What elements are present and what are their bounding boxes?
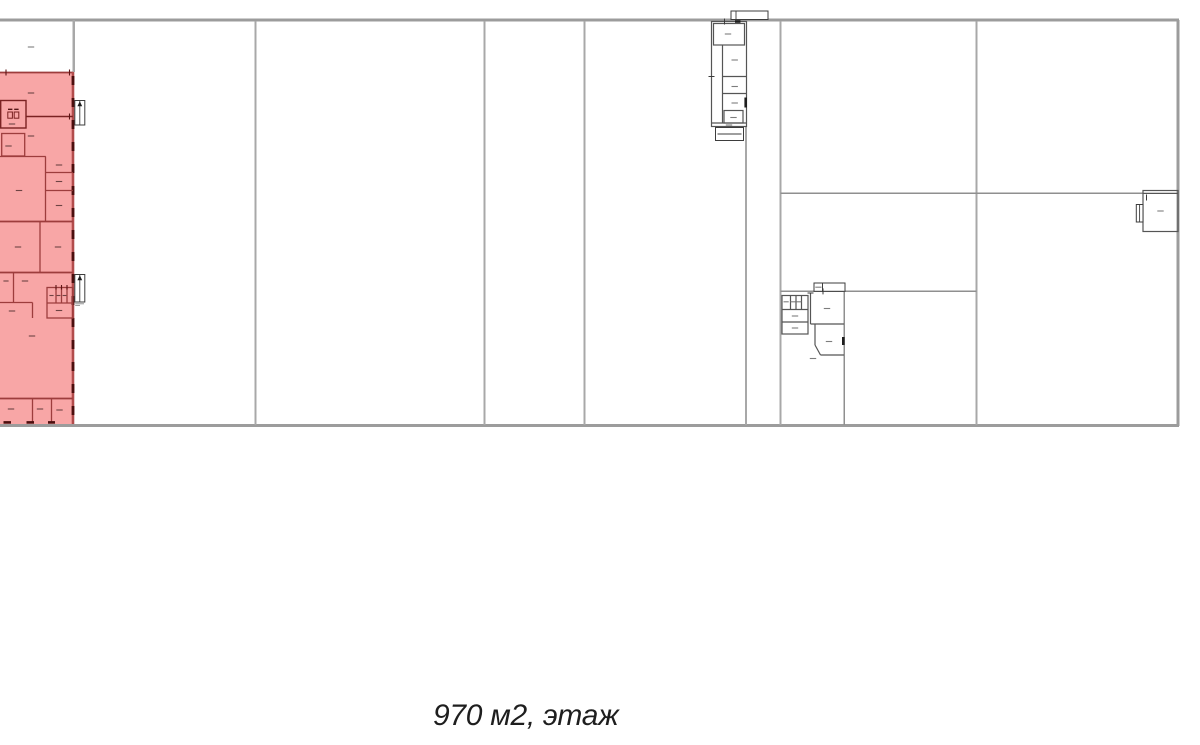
stairs-left-top-icon — [75, 101, 85, 126]
caption-text: 970 м2, этаж — [433, 699, 618, 732]
floorplan-page: { "caption": { "text": "970 м2, этаж" },… — [0, 0, 1200, 745]
rooms-block-right — [782, 283, 845, 355]
stairs-top-icon — [731, 11, 768, 20]
annex-room-right — [1136, 191, 1178, 232]
room-markers-main — [28, 34, 1164, 359]
building-outline — [0, 20, 1179, 426]
caption: 970 м2, этаж — [433, 699, 618, 733]
stairwell-block-top — [709, 19, 747, 127]
highlighted-area — [0, 72, 73, 425]
floor-plan — [0, 0, 1200, 745]
stairs-left-bottom-icon — [75, 275, 85, 306]
section-dividers — [74, 20, 1143, 425]
stairs-mid-icon — [716, 128, 744, 141]
